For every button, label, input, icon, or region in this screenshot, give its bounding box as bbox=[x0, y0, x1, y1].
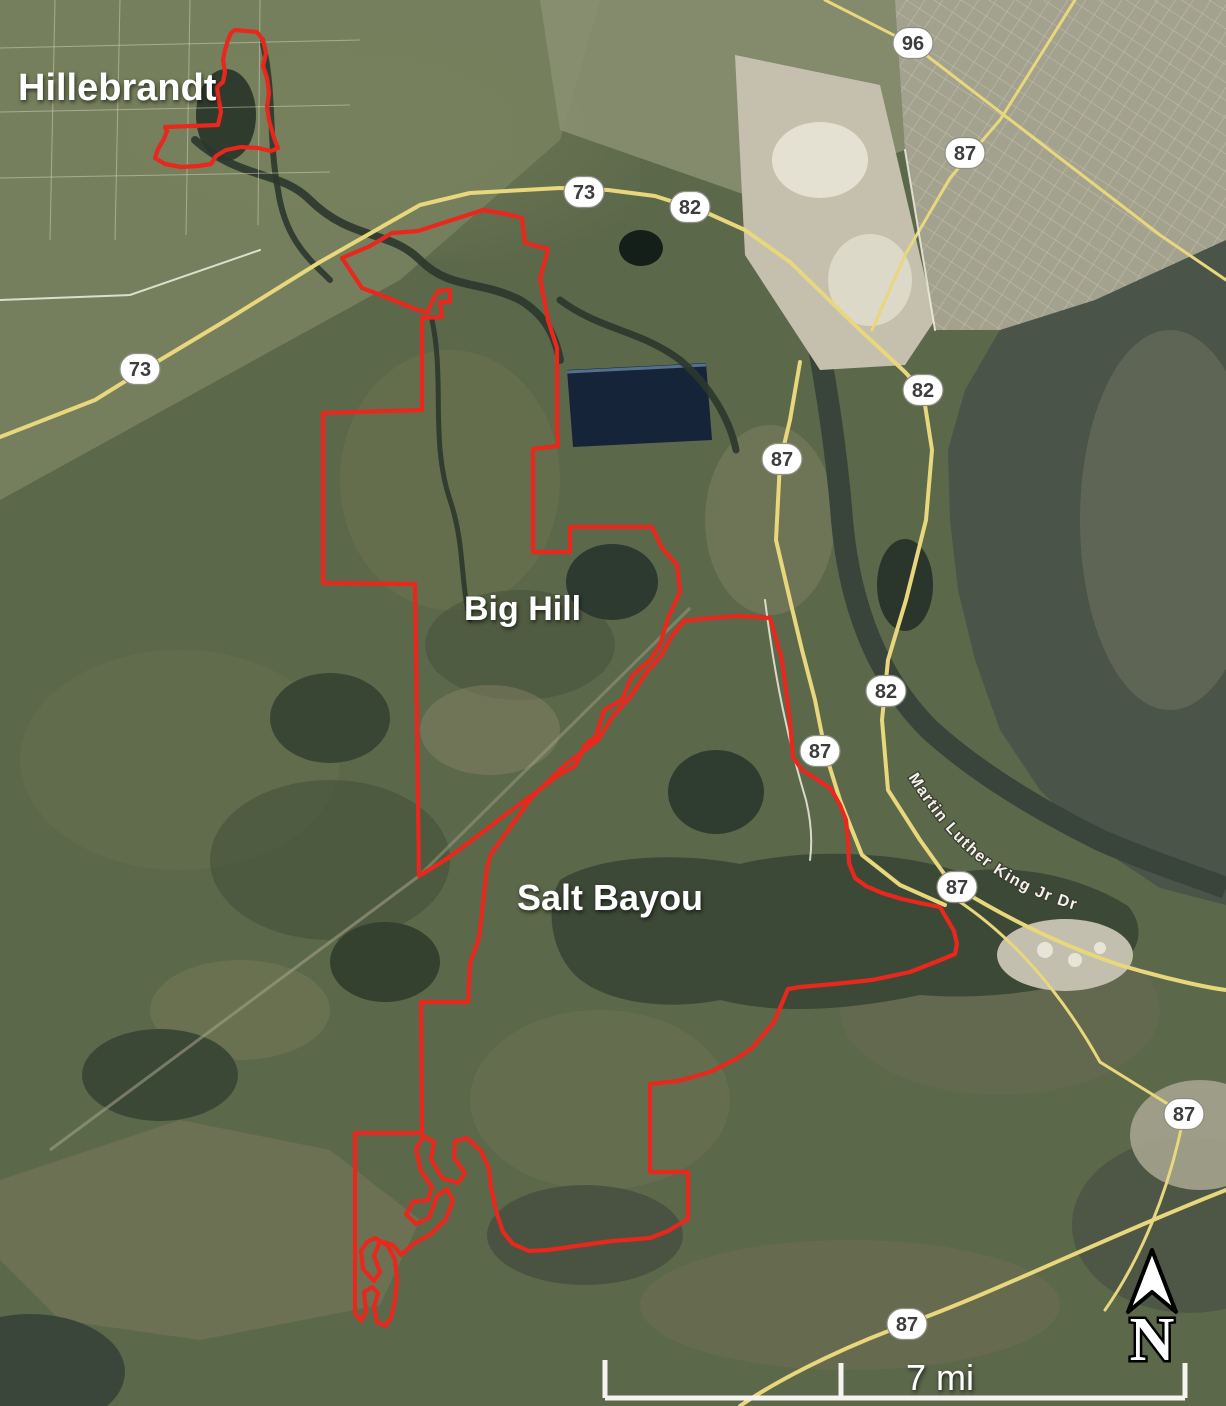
shield-number: 87 bbox=[946, 877, 968, 899]
shield-number: 73 bbox=[129, 359, 151, 381]
scale-bar-label: 7 mi bbox=[906, 1357, 974, 1398]
shield-number: 87 bbox=[954, 143, 976, 165]
pond bbox=[330, 922, 440, 1002]
highway-shield-87: 87 bbox=[762, 444, 802, 475]
storage-tank bbox=[1037, 942, 1053, 958]
pond bbox=[668, 750, 764, 834]
highway-shield-87: 87 bbox=[945, 138, 985, 169]
highway-shield-73: 73 bbox=[120, 354, 160, 385]
label-hillebrandt: Hillebrandt bbox=[18, 67, 217, 109]
marsh-patch bbox=[470, 1010, 730, 1190]
pond bbox=[877, 539, 933, 631]
shield-number: 87 bbox=[809, 741, 831, 763]
marsh-patch bbox=[420, 685, 560, 775]
marsh-patch bbox=[210, 780, 450, 940]
shield-number: 87 bbox=[896, 1314, 918, 1336]
highway-shield-82: 82 bbox=[903, 375, 943, 406]
map-canvas: 968773827382878287878787 Hillebrandt Big… bbox=[0, 0, 1226, 1406]
label-salt-bayou: Salt Bayou bbox=[517, 877, 703, 918]
highway-shield-82: 82 bbox=[866, 676, 906, 707]
marsh-patch bbox=[340, 350, 560, 610]
farmland-glow bbox=[0, 0, 640, 260]
shield-number: 73 bbox=[573, 182, 595, 204]
storage-tank bbox=[1068, 953, 1082, 967]
highway-shield-87: 87 bbox=[1164, 1099, 1204, 1130]
highway-shield-96: 96 bbox=[893, 28, 933, 59]
shield-number: 82 bbox=[875, 681, 897, 703]
highway-shield-87: 87 bbox=[937, 872, 977, 903]
plant-buildings bbox=[772, 122, 868, 198]
label-big-hill: Big Hill bbox=[464, 590, 581, 628]
highway-shield-73: 73 bbox=[564, 177, 604, 208]
shield-number: 82 bbox=[679, 197, 701, 219]
shield-number: 87 bbox=[1173, 1104, 1195, 1126]
north-letter: N bbox=[1130, 1306, 1175, 1374]
shield-number: 96 bbox=[902, 33, 924, 55]
marsh-patch bbox=[640, 1240, 1060, 1370]
pond bbox=[619, 230, 663, 266]
highway-shield-87: 87 bbox=[800, 736, 840, 767]
highway-shield-87: 87 bbox=[887, 1309, 927, 1340]
highway-shield-82: 82 bbox=[670, 192, 710, 223]
storage-tank bbox=[1094, 942, 1106, 954]
pond bbox=[270, 673, 390, 763]
refinery-south bbox=[997, 919, 1133, 991]
reservoir bbox=[567, 363, 712, 447]
shield-number: 82 bbox=[912, 380, 934, 402]
shield-number: 87 bbox=[771, 449, 793, 471]
satellite-map: 968773827382878287878787 Hillebrandt Big… bbox=[0, 0, 1226, 1406]
